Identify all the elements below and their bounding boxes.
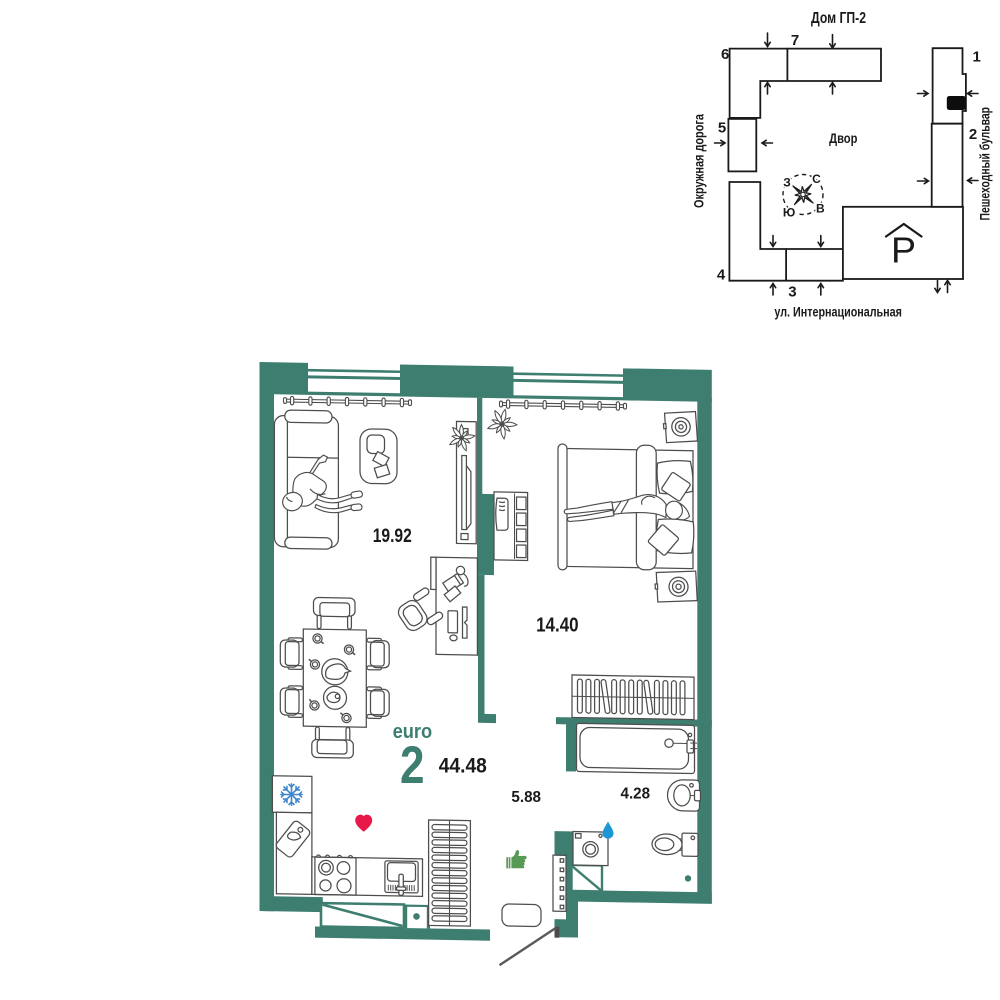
- svg-text:Дом ГП-2: Дом ГП-2: [811, 10, 866, 27]
- svg-text:ул. Интернациональная: ул. Интернациональная: [774, 304, 902, 320]
- svg-text:Двор: Двор: [829, 130, 857, 146]
- svg-text:С: С: [812, 172, 821, 186]
- svg-text:19.92: 19.92: [373, 526, 412, 547]
- svg-text:4.28: 4.28: [621, 785, 651, 802]
- svg-text:Пешеходный бульвар: Пешеходный бульвар: [978, 107, 993, 221]
- svg-text:Р: Р: [891, 230, 916, 271]
- svg-text:4: 4: [717, 267, 726, 284]
- svg-text:З: З: [783, 176, 791, 190]
- svg-text:7: 7: [791, 32, 799, 49]
- svg-text:44.48: 44.48: [439, 753, 487, 777]
- svg-text:1: 1: [973, 48, 981, 65]
- svg-text:2: 2: [969, 126, 977, 143]
- svg-text:6: 6: [721, 46, 729, 63]
- svg-text:14.40: 14.40: [536, 614, 579, 637]
- svg-text:2: 2: [400, 736, 425, 795]
- svg-text:3: 3: [788, 283, 796, 300]
- svg-text:В: В: [816, 202, 825, 216]
- svg-text:5: 5: [718, 120, 726, 137]
- svg-text:Окружная дорога: Окружная дорога: [692, 114, 707, 208]
- svg-text:5.88: 5.88: [511, 789, 541, 806]
- svg-text:Ю: Ю: [783, 206, 795, 220]
